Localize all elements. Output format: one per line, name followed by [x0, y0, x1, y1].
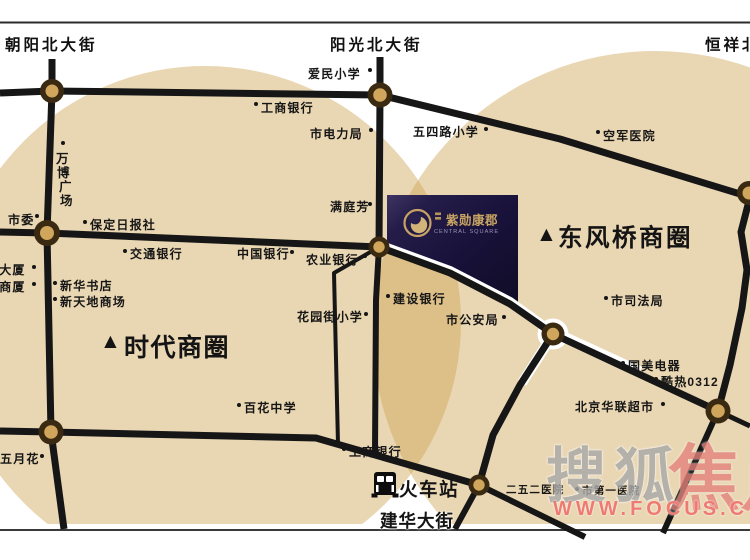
svg-text:CENTRAL SQUARE: CENTRAL SQUARE	[434, 229, 499, 235]
svg-text:紫勋康郡: 紫勋康郡	[446, 213, 498, 228]
